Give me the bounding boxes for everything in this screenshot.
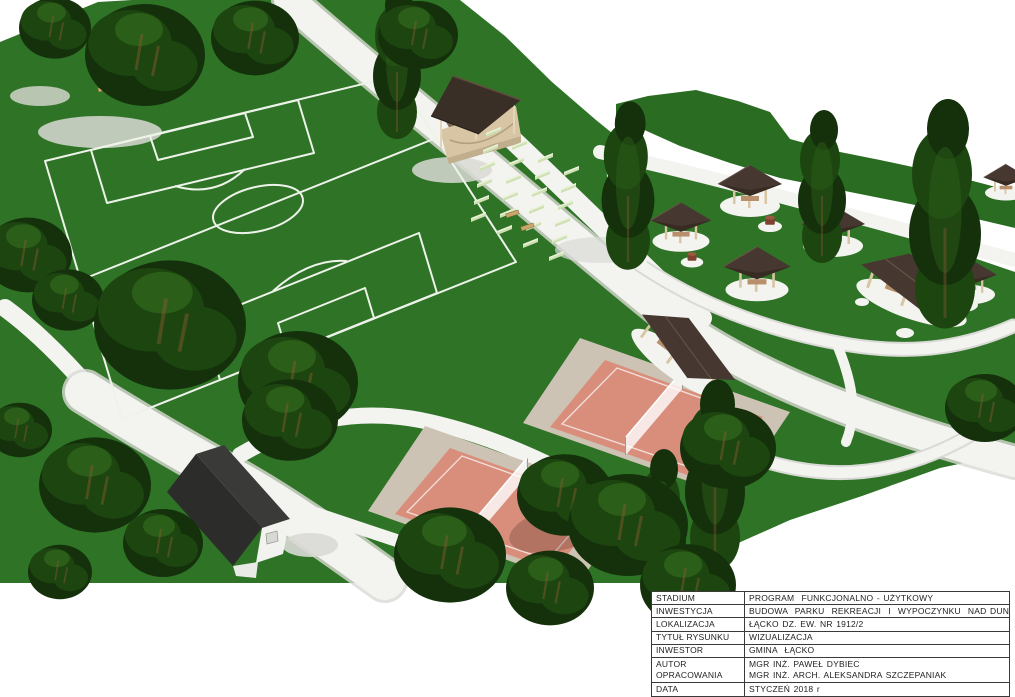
title-block-row: TYTUŁ RYSUNKU WIZUALIZACJA <box>652 631 1009 644</box>
field-label: DATA <box>652 683 744 695</box>
field-value: BUDOWA PARKU REKREACJI I WYPOCZYNKU NAD … <box>744 605 1009 617</box>
field-label: TYTUŁ RYSUNKU <box>652 632 744 644</box>
tree <box>85 4 205 106</box>
tree <box>211 1 299 76</box>
field-label: STADIUM <box>652 592 744 604</box>
poplar-tree <box>909 99 981 329</box>
title-block-row: AUTOR OPRACOWANIA MGR INŻ. PAWEŁ DYBIEC … <box>652 657 1009 682</box>
tree <box>32 269 104 330</box>
title-block-row: DATA STYCZEŃ 2018 r <box>652 682 1009 695</box>
field-value: ŁĄCKO DZ. EW. NR 1912/2 <box>744 618 1009 630</box>
field-value: PROGRAM FUNKCJONALNO - UŻYTKOWY <box>744 592 1009 604</box>
field-value: MGR INŻ. PAWEŁ DYBIEC MGR INŻ. ARCH. ALE… <box>744 658 1009 682</box>
poplar-tree <box>798 110 846 263</box>
title-block-row: INWESTYCJA BUDOWA PARKU REKREACJI I WYPO… <box>652 604 1009 617</box>
field-label: INWESTYCJA <box>652 605 744 617</box>
tree <box>19 0 91 59</box>
tree <box>28 545 92 599</box>
tree <box>39 437 151 532</box>
field-label: INWESTOR <box>652 645 744 657</box>
tree <box>680 407 776 489</box>
field-label: LOKALIZACJA <box>652 618 744 630</box>
tree <box>506 551 594 626</box>
drawing-sheet: STADIUM PROGRAM FUNKCJONALNO - UŻYTKOWY … <box>0 0 1015 697</box>
title-block: STADIUM PROGRAM FUNKCJONALNO - UŻYTKOWY … <box>651 591 1010 697</box>
gazebo-6 <box>984 164 1015 200</box>
tree <box>94 260 246 389</box>
field-value: GMINA ŁĄCKO <box>744 645 1009 657</box>
field-value: STYCZEŃ 2018 r <box>744 683 1009 695</box>
tree <box>378 1 458 69</box>
title-block-row: LOKALIZACJA ŁĄCKO DZ. EW. NR 1912/2 <box>652 617 1009 630</box>
title-block-row: INWESTOR GMINA ŁĄCKO <box>652 644 1009 657</box>
field-value: WIZUALIZACJA <box>744 632 1009 644</box>
tree <box>394 507 506 602</box>
tree <box>242 379 338 461</box>
field-label: AUTOR OPRACOWANIA <box>652 658 744 682</box>
title-block-row: STADIUM PROGRAM FUNKCJONALNO - UŻYTKOWY <box>652 592 1009 604</box>
tree <box>123 509 203 577</box>
